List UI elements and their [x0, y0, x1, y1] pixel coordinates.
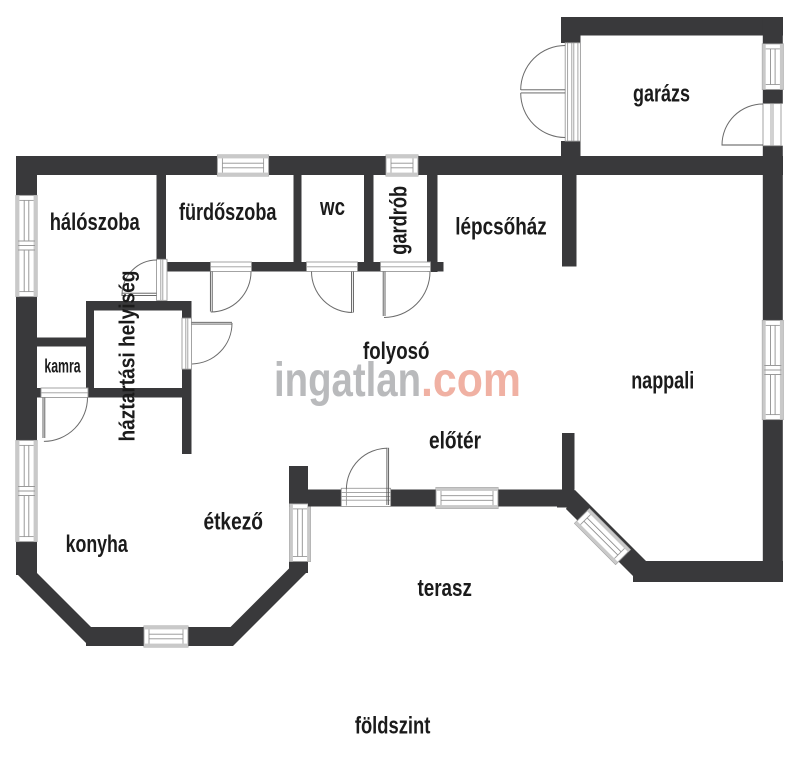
svg-text:garázs: garázs [633, 81, 690, 108]
svg-text:terasz: terasz [417, 575, 472, 602]
svg-text:konyha: konyha [66, 531, 129, 558]
svg-text:földszint: földszint [355, 713, 431, 740]
svg-text:háztartási helyiség: háztartási helyiség [114, 271, 139, 442]
svg-text:hálószoba: hálószoba [50, 209, 140, 236]
svg-text:kamra: kamra [44, 356, 81, 377]
svg-text:ingatlan: ingatlan [274, 354, 421, 407]
svg-text:étkező: étkező [203, 509, 263, 536]
svg-text:wc: wc [319, 194, 345, 221]
svg-text:lépcsőház: lépcsőház [455, 214, 547, 241]
svg-text:nappali: nappali [631, 368, 694, 395]
svg-text:előtér: előtér [429, 428, 481, 455]
svg-text:fürdőszoba: fürdőszoba [179, 199, 277, 226]
svg-text:gardrób: gardrób [386, 186, 413, 255]
svg-text:.com: .com [421, 354, 521, 407]
